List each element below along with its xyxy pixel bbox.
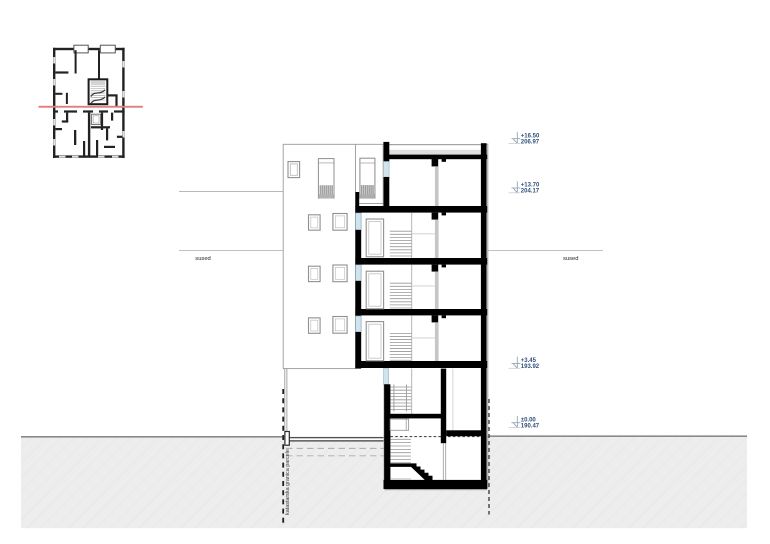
svg-text:206.97: 206.97 — [521, 139, 540, 145]
svg-text:193.92: 193.92 — [521, 364, 540, 370]
svg-text:katastarska granica parcele: katastarska granica parcele — [285, 449, 291, 515]
svg-text:sused: sused — [563, 256, 578, 262]
svg-text:204.17: 204.17 — [521, 189, 540, 195]
svg-text:sused: sused — [195, 256, 210, 262]
svg-text:190.47: 190.47 — [521, 423, 540, 429]
